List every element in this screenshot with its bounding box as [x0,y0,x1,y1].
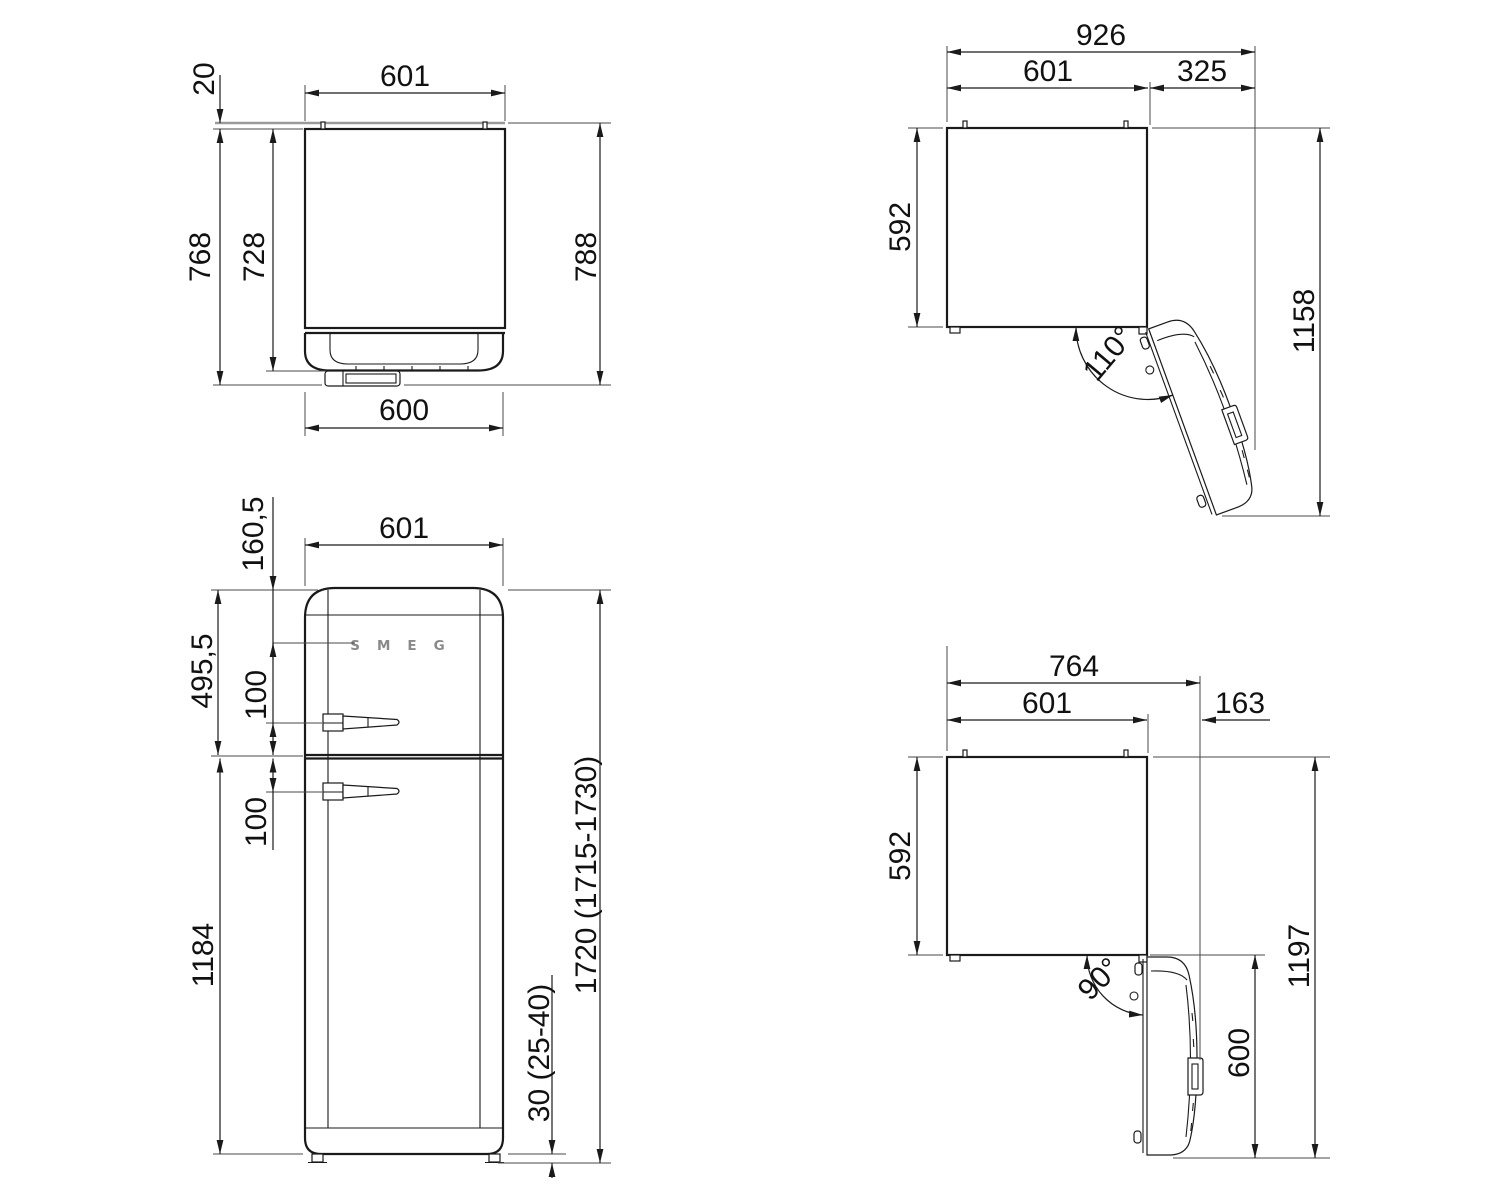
dim-total-width: 764 [1049,650,1099,683]
hinge-pin [963,121,967,128]
dim-bottom-width: 600 [379,394,429,427]
fridge-outline [305,588,503,1154]
dim-door-depth: 600 [1223,1028,1256,1078]
dim-wall-gap: 20 [188,62,221,95]
dim-total-width: 926 [1076,19,1126,52]
dim-divider-to-bottom: 1184 [187,923,220,988]
foot [312,1154,323,1162]
dim-back-to-door: 728 [238,232,271,282]
top-view-door-90: 764 601 163 592 1197 600 90° [884,646,1330,1158]
side-plan-view: 601 20 768 728 788 600 [184,60,611,436]
dim-total-depth: 1158 [1288,289,1321,354]
foot [950,327,960,333]
cabinet-outline [305,129,505,328]
drawing-canvas: 601 20 768 728 788 600 926 601 325 592 [0,0,1500,1200]
dim-total-depth: 1197 [1283,924,1316,989]
open-door-110 [1133,310,1269,521]
dim-top-to-divider: 495,5 [186,633,219,708]
foot [489,1154,500,1162]
curved-door-outline [305,333,503,371]
dim-cabinet-width: 601 [1022,687,1072,720]
hinge-pin [963,750,967,757]
dim-total-height: 1720 (1715-1730) [570,756,603,995]
top-view-door-110: 926 601 325 592 1158 110° [884,19,1330,521]
dim-top-to-logo: 160,5 [237,496,270,571]
dim-door-angle: 90° [1072,952,1127,1007]
open-door-90 [1130,957,1203,1155]
hinge-pin [1124,121,1128,128]
dim-cabinet-depth: 592 [884,202,917,252]
dim-top-width: 601 [380,60,430,93]
hinge-pin [1124,750,1128,757]
dim-wall-to-handle: 788 [570,232,603,282]
foot [950,955,960,961]
technical-drawing: 601 20 768 728 788 600 926 601 325 592 [0,0,1500,1200]
hinge-pin [483,122,487,129]
cabinet-outline [947,757,1147,955]
dim-cabinet-depth: 592 [884,831,917,881]
dim-divider-to-handle: 100 [240,797,273,847]
front-view: SMEG 601 160,5 495,5 [186,496,611,1178]
dim-door-angle: 110° [1077,320,1141,387]
dim-base-clearance: 30 (25-40) [523,984,556,1122]
brand-logo: SMEG [350,638,461,654]
dim-handle-to-divider: 100 [240,670,273,720]
cabinet-outline [947,128,1147,327]
curved-door-inner-contour [330,333,478,364]
dim-cabinet-width: 601 [1023,55,1073,88]
dim-side-extension: 325 [1177,55,1227,88]
handle-plan-outline [325,371,400,386]
hinge-pin [321,122,325,129]
dim-back-to-handle: 768 [184,232,217,282]
dim-side-extension: 163 [1215,687,1265,720]
dim-width: 601 [379,512,429,545]
